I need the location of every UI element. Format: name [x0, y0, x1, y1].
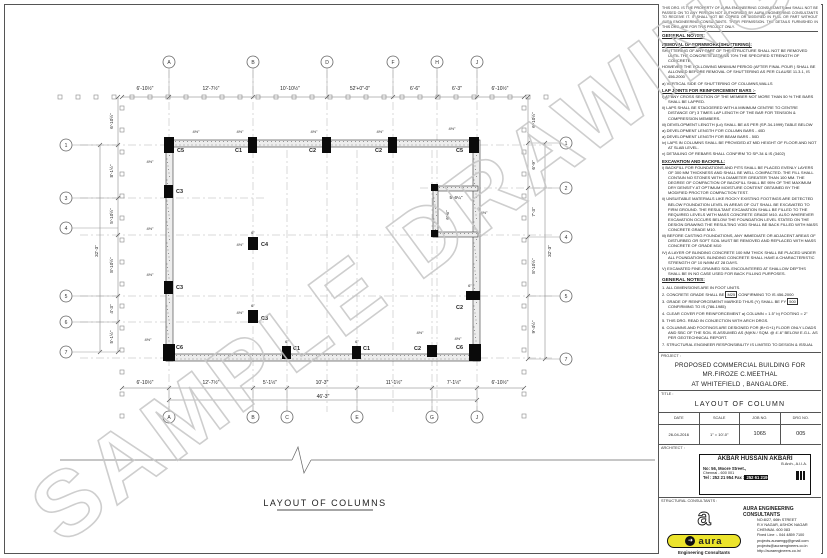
- svg-text:1: 1: [565, 141, 568, 147]
- dim-label: 7'-3": [531, 207, 536, 217]
- section-items-excavation: i) BACKFILL FOR FOUNDATIONS AND PITS SHA…: [662, 165, 818, 276]
- info-header-job: JOB NO.: [740, 413, 781, 425]
- section-title-lap-joints: LAP JOINTS FOR REINFORCEMENT BARS :-: [662, 88, 818, 93]
- svg-text:H: H: [435, 60, 439, 66]
- info-value-scale: 1" = 10'-0": [700, 425, 741, 445]
- svg-text:7: 7: [565, 357, 568, 363]
- note-line: SHUTTERING OF ANY PART OF THE STRUCTURE …: [662, 48, 818, 63]
- grid-bubble-right: 1 2 4 5 7: [560, 137, 572, 365]
- svg-text:4½": 4½": [147, 226, 155, 231]
- dim-label: 8'-1½": [108, 164, 114, 177]
- dim-label: 6'-10½": [137, 379, 154, 386]
- svg-text:4½": 4½": [377, 129, 385, 134]
- svg-text:6: 6: [65, 320, 68, 326]
- dim-label: 5'-6¼": [450, 195, 463, 200]
- svg-text:4: 4: [65, 226, 68, 232]
- phone-text-inverted: 252 61 219: [744, 475, 768, 480]
- structural-consultant-block: STRUCTURAL CONSULTANTS : a ➜ aura Engine…: [659, 497, 821, 554]
- info-header-drg: DRG NO.: [781, 413, 822, 425]
- dimension-bottom: 6'-10½" 12'-7½" 5'-1½" 10'-3" 11'-1½" 7'…: [137, 379, 509, 400]
- column-labels: C5 C1 C2 C2 C5 C3 C3 C6 C1 C1 C2 C6 C4 C…: [176, 148, 463, 352]
- dim-label: 12'-7½": [203, 379, 220, 386]
- phone-text: Tel : 252 21 954 Fax :: [703, 475, 744, 480]
- section-items-lap-joints: i) AT ANY CROSS SECTION OF THE MEMBER NO…: [662, 94, 818, 156]
- title-block-panel: THIS DRG. IS THE PROPERTY OF AURA ENGINE…: [658, 4, 821, 554]
- note-line: iv) LAPS IN COLUMNS SHALL BE PROVIDED AT…: [662, 140, 818, 150]
- column-label: C2: [375, 148, 382, 154]
- svg-text:F: F: [391, 60, 394, 66]
- architect-label: ARCHITECT :: [661, 446, 685, 450]
- svg-text:4½": 4½": [481, 210, 489, 215]
- aura-logo: a ➜ aura Engineering Consultants: [667, 506, 741, 555]
- column-label: C2: [456, 305, 463, 311]
- dim-label: 5'-1½": [108, 330, 114, 343]
- general-notes2-heading: GENERAL NOTES:: [662, 278, 818, 283]
- dim-label: 5'-1½": [263, 379, 277, 386]
- svg-text:6": 6": [468, 283, 472, 288]
- column-label: C3: [261, 316, 268, 322]
- svg-text:2: 2: [565, 186, 568, 192]
- dim-label: 10'-3": [316, 380, 329, 386]
- svg-text:4½": 4½": [237, 242, 245, 247]
- info-value-job: 1065: [740, 425, 781, 445]
- break-line: [60, 447, 655, 473]
- grid-bubble-bottom: A B C E G J: [163, 411, 483, 423]
- firm-address-line: http://auraengineers.co.in/: [757, 549, 819, 554]
- note-line: a) DEVELOPMENT LENGTH FOR COLUMN BARS - …: [662, 128, 818, 133]
- dim-label: 4'-3": [109, 304, 114, 314]
- info-value-drg: 005: [781, 425, 822, 445]
- svg-text:3: 3: [65, 196, 68, 202]
- note-text: 2. CONCRETE GRADE SHALL BE: [662, 292, 724, 297]
- dim-label: 6'-9": [531, 160, 536, 170]
- general-note: 6. COLUMNS AND FOOTINGS ARE DESIGNED FOR…: [662, 325, 818, 340]
- general-note: 7. STRUCTURAL ENGINEER RESPONSIBILITY IS…: [662, 342, 818, 348]
- svg-text:4: 4: [565, 235, 568, 241]
- aura-letter-icon: a: [689, 506, 719, 528]
- aura-badge: ➜ aura: [667, 534, 741, 548]
- firm-address-lines: NO:8/27, 66th STREETR.V NAGAR, ASHOK NAG…: [743, 518, 819, 554]
- note-line: a) DEVELOPMENT LENGTH FOR BEAM BARS - 50…: [662, 134, 818, 139]
- dim-label: 10'-10½": [280, 85, 300, 92]
- architect-block: ARCHITECT : AKBAR HUSSAIN AKBARI B.Arch.…: [659, 444, 821, 497]
- svg-text:C: C: [285, 415, 289, 421]
- info-table: DATE SCALE JOB NO. DRG NO. 26-04-2016 1"…: [659, 412, 821, 444]
- dim-label: 7'-1½": [447, 379, 461, 386]
- column-label: C1: [235, 148, 242, 154]
- svg-text:4½": 4½": [147, 159, 155, 164]
- general-note: 1. ALL DIMENSIONS ARE IN FOOT UNITS.: [662, 285, 818, 290]
- note-line: i) BACKFILL FOR FOUNDATIONS AND PITS SHA…: [662, 165, 818, 196]
- svg-text:4½": 4½": [455, 336, 463, 341]
- note-line: ii) UNSUITABLE MATERIALS LIKE ROCKY EXIS…: [662, 196, 818, 232]
- column-label: C1: [363, 346, 370, 352]
- column-label: C3: [176, 285, 183, 291]
- concrete-grade-value: M25: [725, 291, 737, 298]
- general-note: 5. THIS DRG. READ IN CONJECTION WITH ARC…: [662, 318, 818, 323]
- plan-title: LAYOUT OF COLUMNS: [263, 498, 386, 508]
- grid-bubble-left: 1 3 4 5 6 7: [60, 139, 72, 358]
- svg-text:6": 6": [285, 339, 289, 344]
- shaft-dimensions: 5'-6¼" 6'-6": [445, 195, 463, 220]
- info-value-date: 26-04-2016: [659, 425, 700, 445]
- dim-label: 6'-6": [410, 86, 420, 92]
- notes-area: THIS DRG. IS THE PROPERTY OF AURA ENGINE…: [659, 4, 821, 348]
- dim-label: 6'-10½": [137, 85, 154, 92]
- dim-label: 9'-4½": [530, 320, 536, 333]
- dim-label: 6'-10½": [492, 379, 509, 386]
- svg-text:4½": 4½": [311, 129, 319, 134]
- arrow-icon: ➜: [685, 536, 695, 546]
- wall-hatch: [166, 140, 480, 361]
- svg-text:4½": 4½": [417, 330, 425, 335]
- section-title-excavation: EXCAVATION AND BACKFILL:: [662, 159, 818, 164]
- svg-text:4½": 4½": [147, 272, 155, 277]
- column-label: C2: [309, 148, 316, 154]
- column-label: C6: [456, 345, 463, 351]
- firm-name: AURA ENGINEERING CONSULTANTS: [743, 506, 819, 518]
- note-line: IV) A LAYER OF BLINDING CONCRETE 100 MM …: [662, 250, 818, 265]
- project-label: PROJECT :: [661, 354, 681, 358]
- svg-text:1: 1: [65, 143, 68, 149]
- steel-grade-value: 500: [787, 298, 798, 305]
- info-header-date: DATE: [659, 413, 700, 425]
- section-items-formwork: SHUTTERING OF ANY PART OF THE STRUCTURE …: [662, 48, 818, 86]
- column-label: C2: [414, 346, 421, 352]
- svg-text:D: D: [325, 60, 329, 66]
- title-block: TITLE : LAYOUT OF COLUMN: [659, 390, 821, 412]
- dim-total-label: 32'-3": [547, 245, 552, 257]
- note-line: iii) DEVELOPMENT LENGTH (Ld) SHALL BE AS…: [662, 122, 818, 127]
- firm-address: AURA ENGINEERING CONSULTANTS NO:8/27, 66…: [743, 506, 819, 554]
- drawing-sheet: 6'-10½" 12'-7½" 10'-10½" 52'+0"-0" 6'-6"…: [0, 0, 827, 558]
- note-line: a) VERTICAL SIDE OF SHUTTERING OF COLUMN…: [662, 81, 818, 86]
- copyright-disclaimer: THIS DRG. IS THE PROPERTY OF AURA ENGINE…: [662, 6, 818, 32]
- svg-text:4½": 4½": [449, 126, 457, 131]
- aura-tagline: Engineering Consultants: [667, 550, 741, 555]
- svg-text:4½": 4½": [145, 337, 153, 342]
- svg-text:4½": 4½": [193, 129, 201, 134]
- structural-consultants-label: STRUCTURAL CONSULTANTS :: [661, 499, 717, 503]
- column-label: C5: [177, 148, 184, 154]
- column-label: C4: [261, 242, 269, 248]
- dim-label: 52'+0"-0": [350, 86, 370, 92]
- general-note: 3. GRADE OF REINFORCEMENT MARKED THUS (Y…: [662, 299, 818, 309]
- stamp-emblem-icon: [796, 471, 805, 480]
- general-note: 2. CONCRETE GRADE SHALL BE M25 CONFIRMIN…: [662, 292, 818, 297]
- dim-label: 12'-7½": [203, 85, 220, 92]
- svg-text:G: G: [430, 415, 434, 421]
- project-line: AT WHITEFIELD , BANGALORE.: [659, 380, 821, 389]
- project-line: PROPOSED COMMERCIAL BUILDING FOR: [659, 361, 821, 370]
- note-line: i) AT ANY CROSS SECTION OF THE MEMBER NO…: [662, 94, 818, 104]
- svg-text:5: 5: [565, 294, 568, 300]
- project-block: PROJECT : PROPOSED COMMERCIAL BUILDING F…: [659, 352, 821, 390]
- dimension-top: 6'-10½" 12'-7½" 10'-10½" 52'+0"-0" 6'-6"…: [137, 85, 509, 92]
- column-label: C5: [456, 148, 463, 154]
- grid-bubble-top: A B D F H J: [163, 56, 483, 68]
- note-line: ii) LAPS SHALL BE STAGGERED WITH A MINIM…: [662, 105, 818, 120]
- note-text: CONFIRMING TO IS (786-1985): [668, 304, 726, 309]
- sheet-title: LAYOUT OF COLUMN: [659, 401, 821, 408]
- dim-label: 6'-6": [445, 210, 450, 220]
- dim-label: 8'-10½": [530, 258, 536, 274]
- column-marks: [163, 137, 481, 361]
- dim-total-label: 46'-3": [317, 394, 330, 400]
- svg-text:a: a: [697, 506, 711, 528]
- note-text: CONFIRMING TO IS 456-2000: [738, 292, 793, 297]
- dim-label: 6'-3": [452, 86, 462, 92]
- dim-total-label: 32'-3": [94, 245, 99, 257]
- svg-text:4½": 4½": [237, 129, 245, 134]
- svg-text:4½": 4½": [237, 310, 245, 315]
- project-line: MR.FIROZE C.MEETHAL: [659, 370, 821, 379]
- dim-label: 5'-10½": [108, 208, 114, 224]
- architect-stamp: AKBAR HUSSAIN AKBARI B.Arch., A.I.I.A. N…: [699, 454, 811, 495]
- dim-label: 6'-10½": [492, 85, 509, 92]
- project-description: PROPOSED COMMERCIAL BUILDING FOR MR.FIRO…: [659, 361, 821, 389]
- svg-text:6": 6": [355, 339, 359, 344]
- note-line: iii) BEFORE CASTING FOUNDATIONS, ANY IMM…: [662, 233, 818, 248]
- note-line: V) EXCAVATED FINE-GRAINED SOIL ENCOUNTER…: [662, 266, 818, 276]
- column-layout-plan: 6'-10½" 12'-7½" 10'-10½" 52'+0"-0" 6'-6"…: [0, 0, 660, 558]
- svg-text:7: 7: [65, 350, 68, 356]
- column-label: C1: [293, 346, 300, 352]
- dim-label: 11'-1½": [386, 379, 403, 386]
- column-label: C3: [176, 189, 183, 195]
- info-header-scale: SCALE: [700, 413, 741, 425]
- title-label: TITLE :: [661, 392, 673, 396]
- svg-text:6": 6": [251, 303, 255, 308]
- general-note: 4. CLEAR COVER FOR REINFORCEMENT a) COLU…: [662, 311, 818, 316]
- note-line: v) DETAILING OF REBARS SHALL CONFIRM TO …: [662, 151, 818, 156]
- dim-label: 8'-10½": [108, 257, 114, 273]
- dim-label: 6'-10½": [530, 112, 536, 128]
- svg-text:5: 5: [65, 294, 68, 300]
- general-notes-heading: GENERAL NOTES:: [662, 34, 818, 39]
- architect-phone: Tel : 252 21 954 Fax : 252 61 219: [703, 475, 807, 480]
- column-label: C6: [176, 345, 183, 351]
- aura-wordmark: aura: [698, 536, 722, 547]
- svg-text:6": 6": [251, 230, 255, 235]
- dim-label: 6'-10½": [108, 113, 114, 129]
- note-line: HOWEVER THE FOLLOWING MINIMUM PERIOD (AF…: [662, 64, 818, 79]
- section-title-formwork: REMOVAL OF FORMWORK(SHUTTERING):: [662, 42, 818, 47]
